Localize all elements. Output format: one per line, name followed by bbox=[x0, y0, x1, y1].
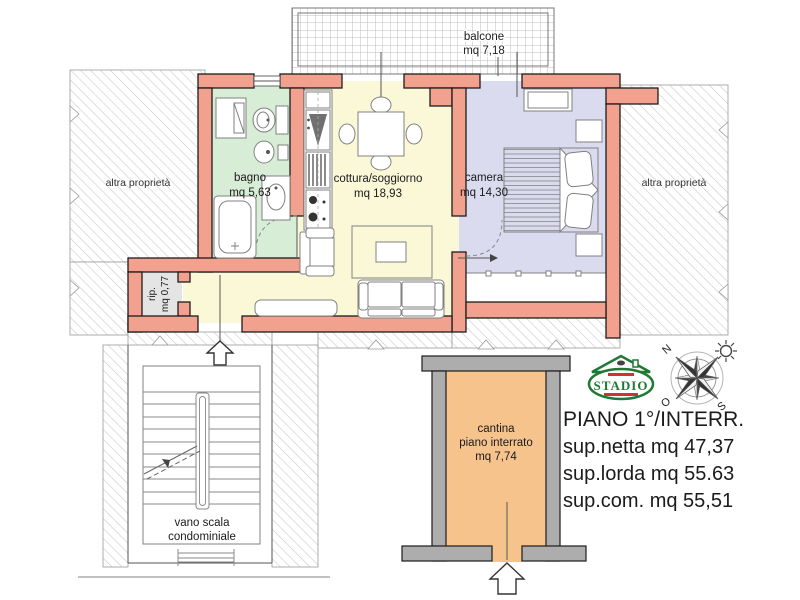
cantina: cantina piano interrato mq 7,74 bbox=[402, 356, 586, 594]
bagno-label: bagno bbox=[234, 172, 266, 184]
dresser bbox=[524, 89, 572, 111]
floor-plan: altra proprietà altra proprietà balcone … bbox=[0, 0, 800, 600]
cottura-label: cottura/soggiorno bbox=[334, 173, 423, 185]
cantina-area: mq 7,74 bbox=[475, 451, 517, 463]
balcony-label: balcone bbox=[464, 31, 504, 43]
stairs-label-2: condominiale bbox=[168, 531, 236, 543]
bagno-area: mq 5,63 bbox=[229, 187, 271, 199]
camera-closet bbox=[466, 271, 606, 303]
sun-icon bbox=[715, 340, 737, 362]
hall-cabinet bbox=[255, 300, 337, 316]
plan-title: PIANO 1°/INTERR. bbox=[563, 408, 744, 431]
cantina-arrow bbox=[490, 563, 524, 594]
sofa bbox=[358, 280, 444, 318]
balcony: balcone mq 7,18 bbox=[292, 8, 554, 76]
cantina-label: cantina bbox=[477, 423, 515, 435]
bagno-window bbox=[254, 76, 280, 86]
camera-label: camera bbox=[465, 172, 504, 184]
other-property-right-label: altra proprietà bbox=[642, 177, 707, 189]
cottura-area: mq 18,93 bbox=[354, 188, 402, 200]
cantina-floor-label: piano interrato bbox=[459, 437, 533, 449]
camera-area: mq 14,30 bbox=[460, 187, 508, 199]
other-property-right-area: altra proprietà bbox=[620, 85, 728, 335]
stadio-logo: STADIO bbox=[589, 356, 653, 399]
rip-label: rip. bbox=[147, 287, 158, 301]
logo-bird-icon bbox=[617, 361, 625, 366]
rip-area: mq 0,77 bbox=[160, 275, 171, 312]
dining-table bbox=[358, 112, 404, 156]
kitchen-counter bbox=[304, 90, 332, 230]
balcony-area: mq 7,18 bbox=[463, 45, 505, 57]
stairs-label-1: vano scala bbox=[175, 517, 231, 529]
floor-plan-drawing: altra proprietà altra proprietà balcone … bbox=[0, 0, 800, 600]
compass-rose: N O S bbox=[659, 340, 737, 414]
compass-north-label: N bbox=[660, 343, 674, 357]
net-area-line: sup.netta mq 47,37 bbox=[563, 436, 734, 458]
toilet bbox=[253, 106, 288, 134]
gross-area-line: sup.lorda mq 55.63 bbox=[563, 463, 734, 485]
bathtub bbox=[214, 196, 256, 258]
double-bed bbox=[504, 148, 598, 232]
info-block: PIANO 1°/INTERR. sup.netta mq 47,37 sup.… bbox=[563, 408, 744, 512]
other-property-left-label: altra proprietà bbox=[106, 177, 171, 189]
commercial-area-line: sup.com. mq 55,51 bbox=[563, 490, 733, 512]
armchair bbox=[300, 228, 334, 276]
stair-direction-line bbox=[144, 446, 200, 479]
logo-text: STADIO bbox=[594, 378, 649, 393]
